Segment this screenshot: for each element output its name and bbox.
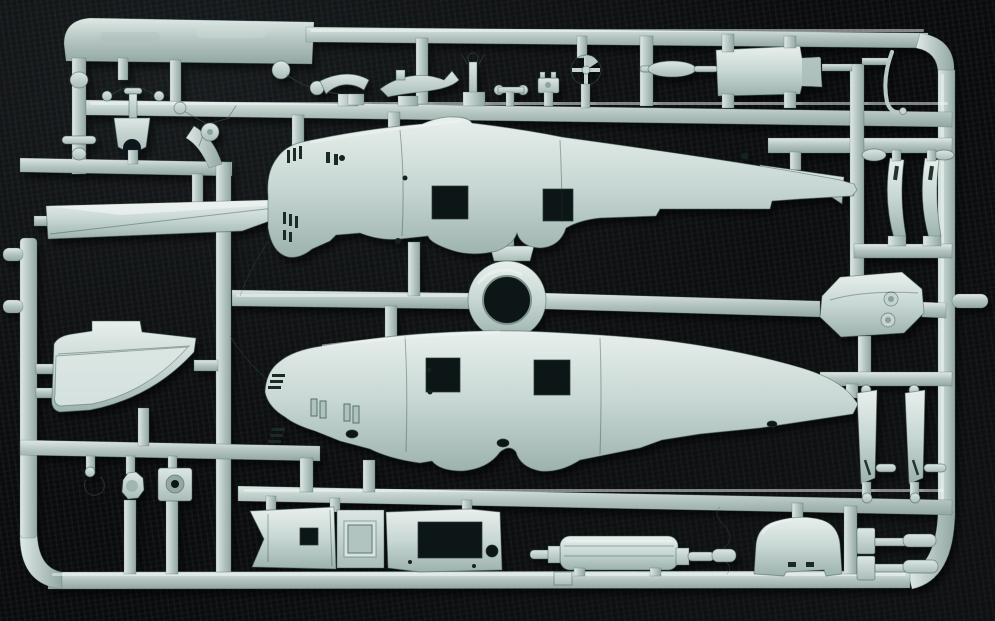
control-wheel <box>571 55 601 108</box>
cabin-panel-hole <box>486 545 498 557</box>
strut-nub-left <box>876 464 896 472</box>
embossed-marking <box>196 26 266 38</box>
right-nub <box>952 294 988 308</box>
gearbox-cover <box>820 272 924 337</box>
stub-fin-left2 <box>36 388 54 398</box>
stub-fin-left1 <box>36 364 54 374</box>
stub-fin-right <box>194 360 218 371</box>
black-fabric-background <box>0 0 995 621</box>
engine-collar-left <box>548 546 560 563</box>
strut-strip-right <box>905 385 925 503</box>
bottom-left-corner <box>20 532 62 589</box>
tail-fin-flap <box>52 321 196 412</box>
plate-stub-bl <box>722 94 734 108</box>
runner-stub-left-join <box>300 458 313 492</box>
engine-shaft-right <box>688 552 714 561</box>
lower-oval-hole-1 <box>346 430 358 438</box>
label-tab <box>64 18 314 64</box>
engine-collar-right <box>676 548 689 565</box>
runner-center-rail <box>922 302 946 318</box>
runner-drop-plate <box>166 500 178 574</box>
center-console <box>337 510 384 568</box>
runner-drop-disc <box>124 500 136 574</box>
plate-stub-tr <box>784 36 796 48</box>
upper-window-cutout-2 <box>543 189 573 221</box>
upper-window-cutout-1 <box>432 186 468 219</box>
stub-fus-top-nose-lower <box>240 242 268 296</box>
strut-nub-right <box>924 464 946 472</box>
wheel-disc-hub <box>126 480 138 492</box>
lower-window-cutout-1 <box>426 358 460 392</box>
left-nub-lower <box>3 300 23 313</box>
runner-top-parts-highlight <box>90 102 948 105</box>
stub-fus-bot-1 <box>385 306 397 338</box>
cockpit-floor <box>250 507 336 569</box>
engine-foot-block <box>554 572 572 585</box>
runner-h-left1 <box>20 158 232 176</box>
bottom-right-corner <box>908 512 955 589</box>
antenna-crossbar <box>62 136 96 144</box>
stub-plate-right-rod <box>822 64 852 71</box>
hook-part <box>84 456 104 495</box>
sprue-photo <box>0 0 995 621</box>
embossed-shadow <box>100 32 160 41</box>
runner-stub-shield-bottom <box>858 336 871 376</box>
cabin-panel <box>386 509 502 572</box>
mount-stub-top <box>118 58 128 80</box>
runner-h-right-struts <box>820 372 952 386</box>
right-rail <box>938 70 955 518</box>
top-right-corner <box>916 33 954 74</box>
top-rail-highlight <box>310 29 924 32</box>
door-blade-left <box>862 149 906 246</box>
lower-oval-hole-2 <box>497 439 509 447</box>
cowl-ring <box>468 261 546 339</box>
strut-strip-left <box>857 385 877 503</box>
clamp-block <box>538 72 559 106</box>
runner-vertical-right <box>850 64 864 294</box>
stub-fus-top-bottom <box>408 242 420 296</box>
runner-center-right <box>544 293 820 317</box>
stub-fus-bot-nose <box>230 336 270 382</box>
stub-fus-bot-down <box>363 460 375 492</box>
plate-stub-tl <box>722 34 734 52</box>
wheel-disc <box>122 456 144 499</box>
stub-fin-bottom <box>138 408 149 446</box>
keyed-plate <box>158 456 192 501</box>
fuselage-half-lower <box>265 331 858 472</box>
runner-bottom-highlight <box>244 489 944 492</box>
left-nub-upper <box>3 248 23 261</box>
runner-stub-tab-gear <box>170 60 181 102</box>
runner-center-highlight <box>236 294 468 297</box>
stub-slat <box>192 174 203 204</box>
stub-antenna-rod <box>862 58 888 65</box>
stub-floor-1 <box>266 496 276 510</box>
plate-step-face <box>802 58 821 86</box>
rudder-fin <box>754 517 842 576</box>
external-tank-upper <box>857 528 936 554</box>
runner-stub-a <box>416 38 428 104</box>
left-rail <box>20 238 37 538</box>
engine-shaft-tip <box>712 549 736 562</box>
cabin-panel-cutout <box>418 522 482 558</box>
floor-opening <box>300 528 318 545</box>
runner-center-left <box>232 290 470 309</box>
wire-antenna <box>885 52 906 115</box>
runner-drop-tanks <box>844 506 857 574</box>
plate-stub-br <box>784 92 796 108</box>
runner-wavy <box>717 507 730 574</box>
mount-stub-bottom <box>128 150 138 164</box>
lower-window-cutout-2 <box>534 360 570 395</box>
stub-tailplane <box>790 152 801 170</box>
valve-fitting <box>462 53 485 106</box>
stub-slat-rail <box>34 216 48 226</box>
